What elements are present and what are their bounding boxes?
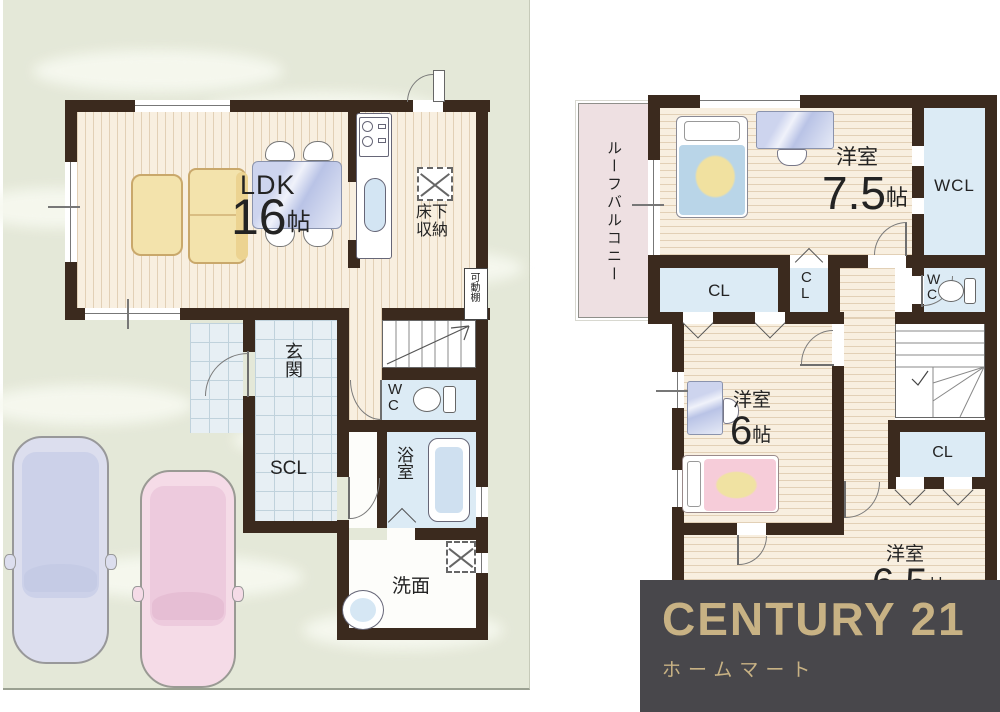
stove-burner [362,136,373,147]
wall [243,320,255,352]
sofa [131,174,183,256]
car-mirror [132,586,144,602]
car-mirror [4,554,16,570]
stairs-2f [895,318,985,418]
wall [349,420,488,432]
window-tick [656,390,688,392]
wall [713,312,755,324]
wall [888,420,997,432]
window [476,487,488,517]
bathtub-water [435,447,463,513]
closet-b-label: CL [801,270,816,302]
window [700,95,800,108]
desk [756,111,834,149]
ldk-size: 16 帖 [231,194,311,242]
wash-basin-bowl [350,598,376,622]
door-opening [868,255,906,268]
door-leaf [800,364,834,366]
sofa-cushion-line [190,214,236,216]
toilet-tank [443,386,456,413]
door-opening [912,146,924,166]
car-mirror [232,586,244,602]
wall [895,312,997,324]
bedroom-6-size-unit: 帖 [752,420,771,450]
wall [243,521,349,533]
stairs-treads [383,321,475,367]
toilet-tank [964,278,976,304]
bed-blanket [679,145,745,215]
roof-balcony-label: ルーフバルコニー [606,140,621,284]
wall [912,108,924,255]
car-blue-windshield [24,564,97,592]
car-mirror [105,554,117,570]
shoe-closet-label: SCL [270,458,307,480]
stairs-1f [382,320,476,368]
dining-chair [303,141,333,161]
window-tick [48,206,80,208]
underfloor-storage-hatch [417,167,453,201]
floorplan-flyer: { "document": {"type": "real-estate floo… [0,0,1000,712]
bed-pillow [684,121,740,141]
walk-in-closet-label: WCL [924,176,985,196]
closet-c-label: CL [900,444,985,462]
kitchen-sink [364,178,386,232]
bedroom-6-size: 6 帖 [730,412,771,450]
brand-name: CENTURY 21 [662,596,1000,642]
cloud-decoration [33,50,283,92]
wall [778,268,790,312]
wall [672,318,684,580]
stairs-treads [896,319,984,417]
entrance-label: 玄関 [284,342,302,378]
window [476,553,488,573]
bathroom-label: 浴室 [395,446,412,480]
wall [337,320,349,477]
wall [382,368,476,380]
dining-chair [265,141,295,161]
wall [648,312,683,324]
wc-label: WC [388,382,404,414]
wall [243,396,255,533]
window [648,160,660,255]
ldk-size-number: 16 [231,194,287,242]
bedroom-7-5-size-number: 7.5 [822,172,886,216]
company-name: ホームマート [662,655,1000,682]
wall [912,255,997,268]
stove-knob [378,124,386,129]
closet-a-label: CL [660,281,778,301]
wall [985,95,997,580]
century21-logo-panel: CENTURY 21 ホームマート [640,580,1000,712]
underfloor-storage-label: 床下 収納 [416,204,448,241]
wc-2f-label: WC [927,272,942,301]
desk [687,381,723,435]
bed-blanket [704,459,776,511]
bedroom-6-size-number: 6 [730,412,752,450]
bed-pillow [687,461,701,507]
hall-2f-floor [840,268,895,318]
stove-burner [362,121,373,132]
movable-shelf-label: 可動棚 [468,272,478,302]
entry-door-leaf [433,70,445,102]
ldk-size-unit: 帖 [287,202,311,242]
cloud-decoration [0,385,193,425]
door-opening [737,523,766,535]
stove-knob [378,138,386,143]
window-tick [127,299,129,329]
bedroom-7-5-size-unit: 帖 [886,180,908,216]
washer-space [446,541,476,573]
wall [828,268,840,312]
door-opening [832,324,844,366]
toilet-bowl [413,387,441,412]
wall [415,528,488,540]
car-pink-windshield [152,592,224,620]
window [85,308,180,320]
window [65,162,77,262]
door-opening [912,198,924,214]
window [135,100,230,112]
washroom-label: 洗面 [392,576,430,598]
bedroom-7-5-size: 7.5 帖 [822,172,908,216]
window-tick [632,204,664,206]
